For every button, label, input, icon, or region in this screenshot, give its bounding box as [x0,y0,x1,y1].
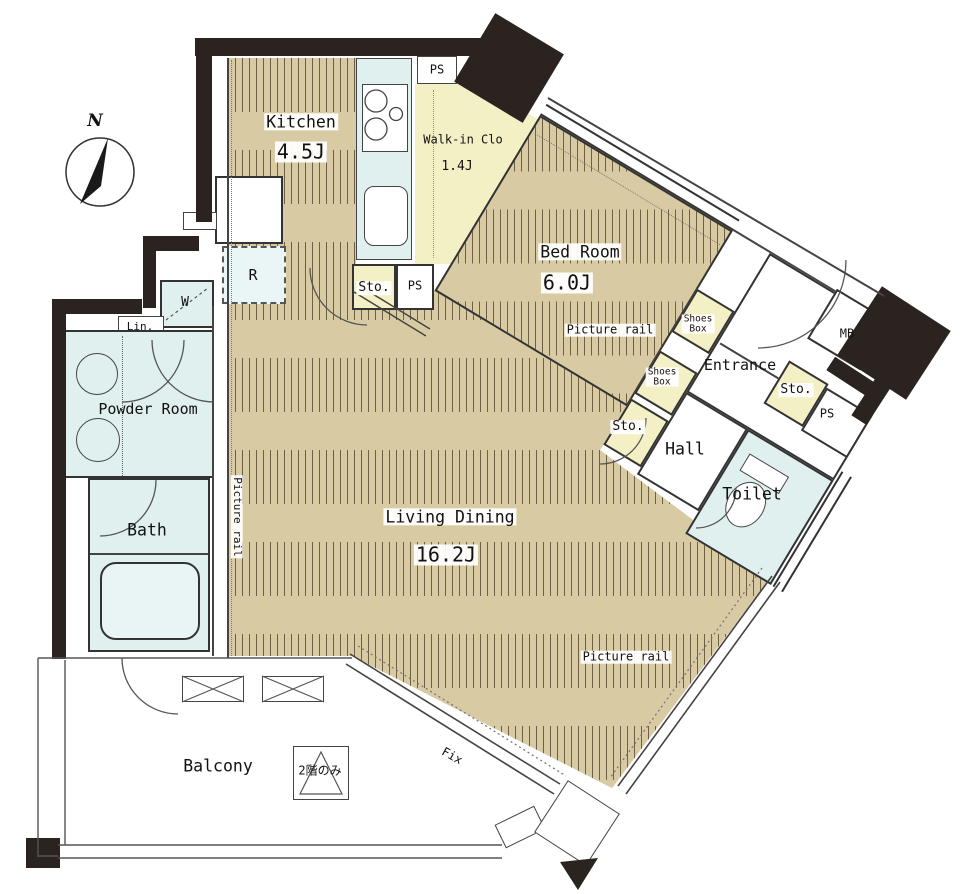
left-wall-upper [196,38,212,222]
balcony-block-left [26,838,60,868]
compass-n-label: N [85,113,105,131]
picture-rail-living-label: Picture rail [581,651,672,664]
fix-window-label: Fix [438,744,467,767]
bathtub [100,562,200,640]
bedroom-picture-rail-line [537,135,720,246]
bath-room-floor [88,478,210,652]
second-floor-only-label: 2階のみ [296,765,343,778]
walk-in-closet-area-label: 1.4J [439,160,474,174]
linen-label: Lin. [125,321,156,333]
shoes-box-lower-label: Shoes Box [646,368,679,387]
floor-plan: N Kitchen 4.5J PS Walk-in Clo 1.4J Bed R… [0,0,960,894]
kitchen-storage-label: Sto. [356,281,391,295]
top-wall [195,38,513,56]
shoes-box-upper-label: Shoes Box [682,315,715,334]
vanity-sink-2 [76,418,120,462]
powder-room-label: Powder Room [96,402,199,418]
entrance-storage-label: Sto. [778,383,813,397]
shoes-box-lower-line2: Box [653,376,670,387]
shaft-box [215,176,283,244]
bedroom-label: Bed Room [538,243,621,260]
picture-rail-bedroom-label: Picture rail [565,324,656,337]
ld-left-wall [227,268,229,658]
compass-icon [66,138,134,206]
living-dining-label: Living Dining [383,508,516,525]
entrance-label: Entrance [702,358,778,374]
toilet-label: Toilet [720,485,784,502]
meter-box-label: MB [838,328,856,341]
picture-rail-left-label: Picture rail [231,475,243,558]
washer-label: W [179,296,191,310]
ac-unit-1 [182,676,244,702]
picture-rail-left-line [231,60,232,656]
kitchen-left-wall [227,58,229,268]
kitchen-area-label: 4.5J [275,142,327,163]
hall-storage-label: Sto. [610,420,645,434]
bedroom-area-label: 6.0J [541,273,593,294]
refrigerator-label: R [246,268,259,284]
walk-in-closet-label: Walk-in Clo [421,134,504,147]
left-wall-step-v [143,236,156,308]
bath-partition-line [90,553,208,555]
ac-unit-2 [262,676,324,702]
left-wall-main [52,299,66,659]
balcony-label: Balcony [181,757,255,774]
stove [362,84,408,152]
ps-top-label: PS [428,64,446,77]
vanity-sink-1 [76,353,118,395]
shoes-box-upper-line2: Box [689,323,706,334]
walk-in-closet-rail-line [433,90,434,258]
kitchen-sink [364,186,408,246]
corridor-wall [212,306,214,656]
kitchen-label: Kitchen [264,113,338,130]
ps-right-label: PS [818,408,836,421]
bath-label: Bath [125,521,169,538]
hall-label: Hall [663,440,707,457]
ps-kitchen-label: PS [406,280,424,293]
living-dining-area-label: 16.2J [414,545,478,566]
pillar-bottom-diamond [534,780,620,866]
